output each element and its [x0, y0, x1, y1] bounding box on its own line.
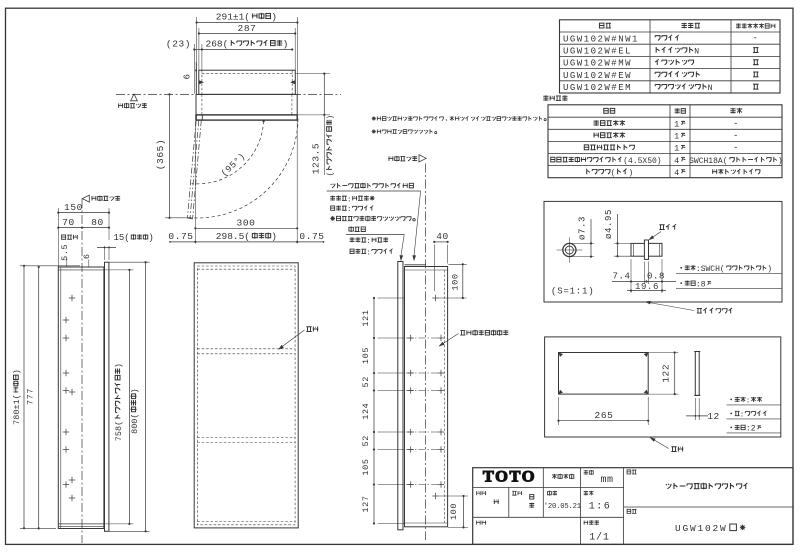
svg-text:-: - [733, 143, 739, 153]
svg-text:UGW102W#EM: UGW102W#EM [563, 83, 632, 93]
svg-text:5.5: 5.5 [60, 244, 70, 261]
svg-text::: : [367, 249, 371, 257]
svg-text::: : [740, 412, 744, 420]
svg-text:300: 300 [237, 217, 256, 228]
svg-text:287: 287 [238, 23, 257, 34]
svg-text:): ) [629, 170, 634, 178]
svg-text:N: N [694, 48, 699, 57]
svg-text:1: 1 [674, 120, 679, 130]
svg-text:124: 124 [361, 403, 371, 420]
svg-text:1:6: 1:6 [589, 502, 612, 513]
svg-text:298.5(: 298.5( [216, 231, 250, 242]
svg-text:-: - [733, 131, 739, 141]
svg-text:): ) [778, 157, 783, 166]
svg-text::SWCH(: :SWCH( [696, 265, 725, 274]
svg-text:780±1(: 780±1( [12, 394, 22, 425]
svg-text:52: 52 [361, 435, 371, 446]
svg-text:): ) [130, 388, 140, 393]
svg-text:): ) [114, 363, 124, 368]
svg-text:UGW102W#NW1: UGW102W#NW1 [563, 34, 639, 44]
svg-text:UGW102W#MW: UGW102W#MW [563, 59, 632, 69]
svg-text:40: 40 [436, 231, 449, 242]
svg-text:4: 4 [674, 168, 679, 178]
svg-text:4: 4 [674, 156, 679, 166]
svg-text:): ) [271, 12, 277, 23]
svg-text:TOTO: TOTO [483, 469, 536, 485]
svg-text:UGW102W#EW: UGW102W#EW [563, 71, 632, 81]
svg-text:1/1: 1/1 [589, 532, 609, 544]
svg-text:7.4: 7.4 [612, 272, 630, 282]
svg-text:758(: 758( [114, 421, 124, 441]
svg-text:777: 777 [26, 388, 36, 405]
svg-text:(S=1:1): (S=1:1) [551, 287, 594, 297]
svg-text:6: 6 [82, 253, 92, 259]
svg-text:(23): (23) [166, 39, 191, 50]
svg-text:-: - [752, 34, 758, 44]
svg-text:(4.5X50): (4.5X50) [623, 157, 661, 166]
svg-text::: : [347, 196, 351, 204]
svg-text:(: ( [611, 170, 616, 178]
svg-text:SWCH18A(: SWCH18A( [689, 157, 727, 166]
svg-text:): ) [148, 233, 153, 243]
svg-text:105: 105 [361, 347, 371, 364]
svg-text:150: 150 [64, 202, 83, 213]
svg-text:268(: 268( [206, 39, 229, 50]
svg-text:100: 100 [451, 273, 461, 290]
svg-text:265: 265 [595, 410, 614, 421]
svg-text:1: 1 [674, 132, 679, 142]
svg-text:105: 105 [361, 458, 371, 475]
svg-text:0.75: 0.75 [299, 231, 324, 242]
svg-text:127: 127 [361, 495, 371, 512]
svg-text:(: ( [328, 172, 336, 177]
svg-text:mm: mm [600, 475, 613, 486]
svg-text:UGW102W#EL: UGW102W#EL [563, 47, 632, 57]
svg-text:52: 52 [361, 376, 371, 387]
svg-text:6: 6 [182, 73, 192, 79]
svg-text:'20.05.21: '20.05.21 [544, 503, 581, 511]
svg-text::2: :2 [746, 425, 756, 434]
svg-text:): ) [12, 369, 22, 374]
svg-text:121: 121 [361, 309, 371, 326]
svg-text:15(: 15( [114, 233, 130, 243]
svg-text:0.75: 0.75 [168, 231, 193, 242]
svg-text:): ) [328, 115, 336, 120]
svg-text:80: 80 [91, 217, 104, 228]
svg-text:UGW102W: UGW102W [675, 523, 728, 534]
svg-text:291±1(: 291±1( [216, 12, 250, 23]
svg-text::: : [746, 398, 750, 406]
svg-text:ø4.95: ø4.95 [604, 209, 614, 239]
svg-text:): ) [271, 231, 277, 242]
svg-text:N: N [708, 84, 713, 93]
svg-text:ø7.3: ø7.3 [577, 216, 587, 240]
svg-text:-: - [733, 119, 739, 129]
svg-text:100: 100 [449, 503, 459, 520]
svg-text:70: 70 [62, 217, 75, 228]
svg-text:(365): (365) [155, 139, 166, 171]
svg-text:1: 1 [674, 144, 679, 154]
svg-text:12: 12 [707, 411, 720, 422]
svg-text:123.5: 123.5 [310, 143, 321, 175]
svg-text:): ) [283, 39, 289, 50]
svg-text:0.8: 0.8 [647, 272, 665, 282]
svg-text:122: 122 [661, 364, 672, 383]
svg-text::: : [367, 238, 371, 246]
svg-text::: : [347, 206, 351, 214]
svg-text:800(: 800( [130, 413, 140, 433]
svg-text:): ) [767, 265, 772, 274]
svg-text::8: :8 [696, 280, 706, 289]
svg-text:19.6: 19.6 [635, 282, 659, 292]
